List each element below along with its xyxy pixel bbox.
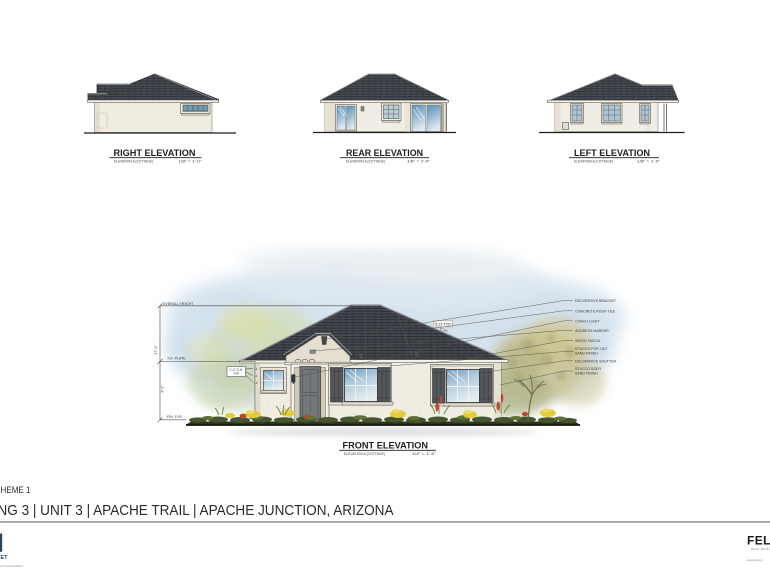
svg-text:ELEVATION A (COTTAGE): ELEVATION A (COTTAGE) bbox=[574, 159, 614, 164]
svg-text:+2: +2 bbox=[254, 367, 258, 371]
svg-text:+3: +3 bbox=[254, 381, 258, 385]
svg-text:NG 3 | UNIT 3 | APACHE TRAIL |: NG 3 | UNIT 3 | APACHE TRAIL | APACHE JU… bbox=[0, 502, 394, 519]
svg-text:SAND FINISH: SAND FINISH bbox=[575, 352, 598, 356]
svg-text:ELEVATION A (COTTAGE): ELEVATION A (COTTAGE) bbox=[346, 159, 386, 164]
svg-text:5:12 TYP: 5:12 TYP bbox=[435, 322, 451, 326]
svg-text:CONCRETE ROOF TILE: CONCRETE ROOF TILE bbox=[575, 309, 616, 313]
svg-text:Mesa, Arizona 85212: Mesa, Arizona 85212 bbox=[0, 564, 24, 568]
svg-text:Phone: 602.80: Phone: 602.80 bbox=[751, 547, 770, 551]
svg-text:LEFT ELEVATION: LEFT ELEVATION bbox=[574, 148, 650, 158]
svg-text:1/8" = 1'-0": 1/8" = 1'-0" bbox=[407, 159, 431, 164]
svg-text:DECORATIVE BRACKET: DECORATIVE BRACKET bbox=[575, 299, 617, 303]
svg-text:REAR ELEVATION: REAR ELEVATION bbox=[346, 148, 423, 158]
svg-text:9'-1": 9'-1" bbox=[161, 385, 165, 393]
svg-text:SAND FINISH: SAND FINISH bbox=[575, 372, 598, 376]
svg-text:+1: +1 bbox=[254, 374, 258, 378]
svg-text:ELEVATION A (COTTAGE): ELEVATION A (COTTAGE) bbox=[114, 159, 154, 164]
svg-text:DECORATIVE SHUTTER: DECORATIVE SHUTTER bbox=[575, 359, 616, 363]
svg-text:CET: CET bbox=[0, 555, 8, 561]
svg-text:TYP: TYP bbox=[233, 372, 239, 376]
svg-text:COACH LIGHT: COACH LIGHT bbox=[575, 319, 600, 323]
svg-text:FRONT ELEVATION: FRONT ELEVATION bbox=[343, 440, 429, 451]
svg-text:www.felteng: www.felteng bbox=[747, 558, 764, 562]
svg-text:1/8" = 1'-0": 1/8" = 1'-0" bbox=[179, 159, 203, 164]
svg-text:HEME 1: HEME 1 bbox=[1, 485, 31, 495]
svg-text:17'-4": 17'-4" bbox=[154, 345, 158, 355]
svg-text:1/4" = 1'-0": 1/4" = 1'-0" bbox=[412, 451, 437, 456]
svg-text:T.O. PLATE: T.O. PLATE bbox=[167, 357, 186, 361]
svg-text:STUCCO BODY: STUCCO BODY bbox=[575, 367, 602, 371]
svg-text:ADDRESS MARKER: ADDRESS MARKER bbox=[575, 329, 609, 333]
svg-text:WOOD FASCIA: WOOD FASCIA bbox=[575, 339, 601, 343]
svg-text:STUCCO POP-OUT: STUCCO POP-OUT bbox=[575, 347, 608, 351]
svg-text:FIN. FLR.: FIN. FLR. bbox=[167, 415, 183, 419]
svg-text:RIGHT ELEVATION: RIGHT ELEVATION bbox=[114, 148, 196, 158]
svg-text:ELEVATION A (COTTAGE): ELEVATION A (COTTAGE) bbox=[344, 451, 386, 456]
svg-text:1/8" = 1'-0": 1/8" = 1'-0" bbox=[637, 159, 661, 164]
svg-text:FELT: FELT bbox=[747, 534, 770, 548]
svg-text:OVERALL HEIGHT: OVERALL HEIGHT bbox=[163, 302, 195, 306]
